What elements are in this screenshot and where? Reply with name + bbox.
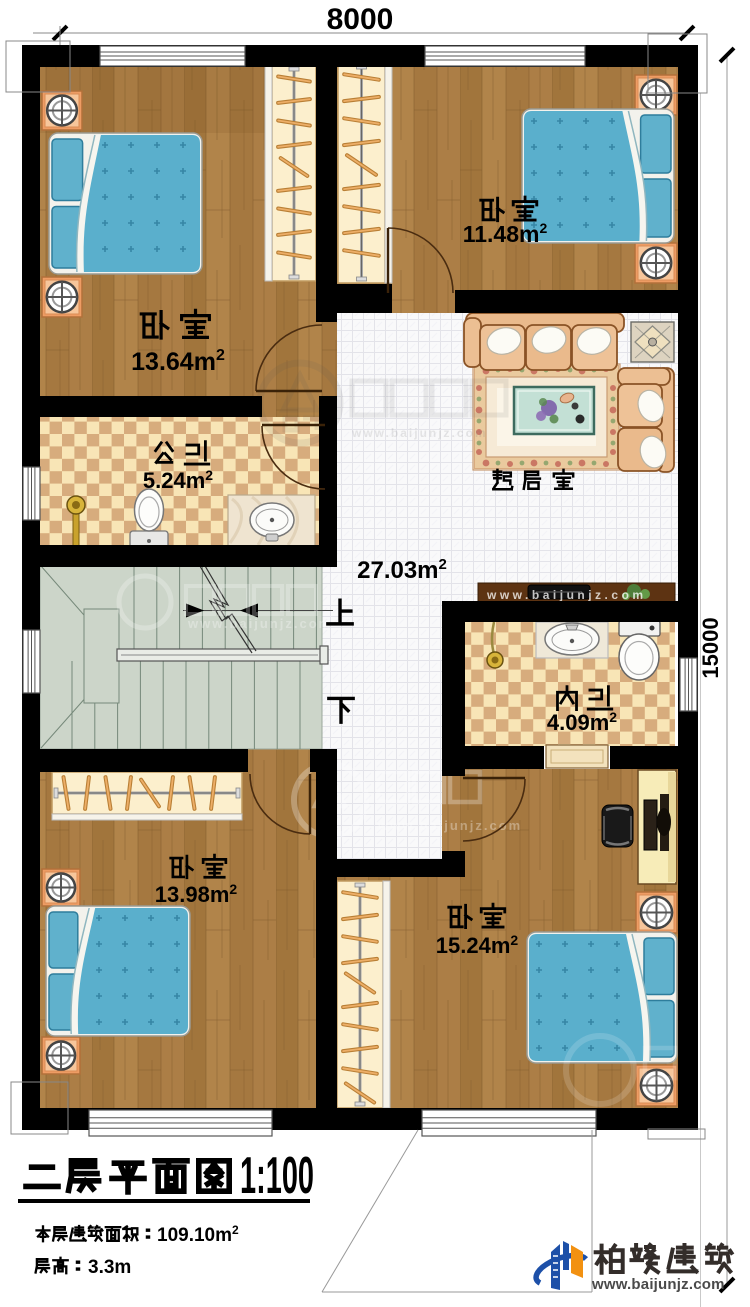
svg-text:www.baijunjz.com: www.baijunjz.com [486,588,647,602]
svg-text:www.baijunjz.com: www.baijunjz.com [591,1276,725,1293]
svg-text:4.09m2: 4.09m2 [547,709,617,735]
svg-text:www.baijunjz.com: www.baijunjz.com [351,426,488,440]
svg-text:www.baijunjz.com: www.baijunjz.com [377,818,522,833]
svg-text:8000: 8000 [327,3,394,36]
svg-text:www.baijunjz.com: www.baijunjz.com [187,616,332,631]
svg-text:5.24m2: 5.24m2 [143,467,213,493]
svg-text:3.3m: 3.3m [88,1257,131,1278]
svg-text:27.03m2: 27.03m2 [357,556,447,584]
svg-text:1:100: 1:100 [240,1147,314,1205]
svg-text:15.24m2: 15.24m2 [436,932,519,958]
svg-text:13.98m2: 13.98m2 [155,881,238,907]
svg-text:15000: 15000 [698,617,723,678]
svg-text:13.64m2: 13.64m2 [131,347,225,376]
svg-text:11.48m2: 11.48m2 [463,220,548,247]
svg-text:109.10m2: 109.10m2 [157,1223,239,1246]
